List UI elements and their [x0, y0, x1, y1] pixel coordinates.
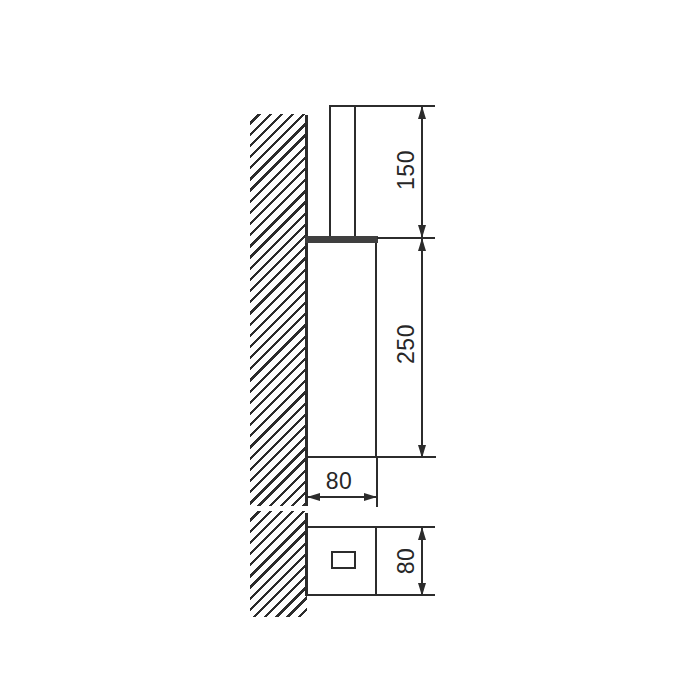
- mount-plate: [305, 236, 378, 243]
- wall-edge-line-upper: [305, 115, 308, 506]
- handle-left-line: [329, 106, 331, 238]
- technical-drawing: 150 250 80 80: [0, 0, 700, 700]
- mount-slot: [331, 551, 356, 569]
- arrowhead-down-icon: [418, 583, 426, 596]
- plan-right-line: [375, 526, 377, 596]
- wall-hatch-upper: [250, 114, 307, 506]
- arrowhead-up-icon: [418, 527, 426, 540]
- arrowhead-left-icon: [307, 493, 320, 501]
- arrowhead-down-icon: [418, 225, 426, 238]
- dimension-line-vertical-side: [421, 106, 423, 458]
- arrowhead-up-icon: [418, 106, 426, 119]
- body-bottom-extension-line: [305, 456, 436, 458]
- handle-right-line: [354, 106, 356, 238]
- wall-hatch-lower: [250, 511, 307, 617]
- dimension-label-body-depth: 80: [393, 521, 419, 601]
- body-right-line: [375, 243, 377, 458]
- dimension-label-body-width: 80: [309, 468, 369, 494]
- dimension-label-handle-height: 150: [393, 130, 419, 210]
- arrowhead-up-icon: [418, 238, 426, 251]
- dimension-label-body-height: 250: [393, 304, 419, 384]
- arrowhead-down-icon: [418, 445, 426, 458]
- plate-extension-line: [377, 237, 435, 239]
- arrowhead-right-icon: [364, 493, 377, 501]
